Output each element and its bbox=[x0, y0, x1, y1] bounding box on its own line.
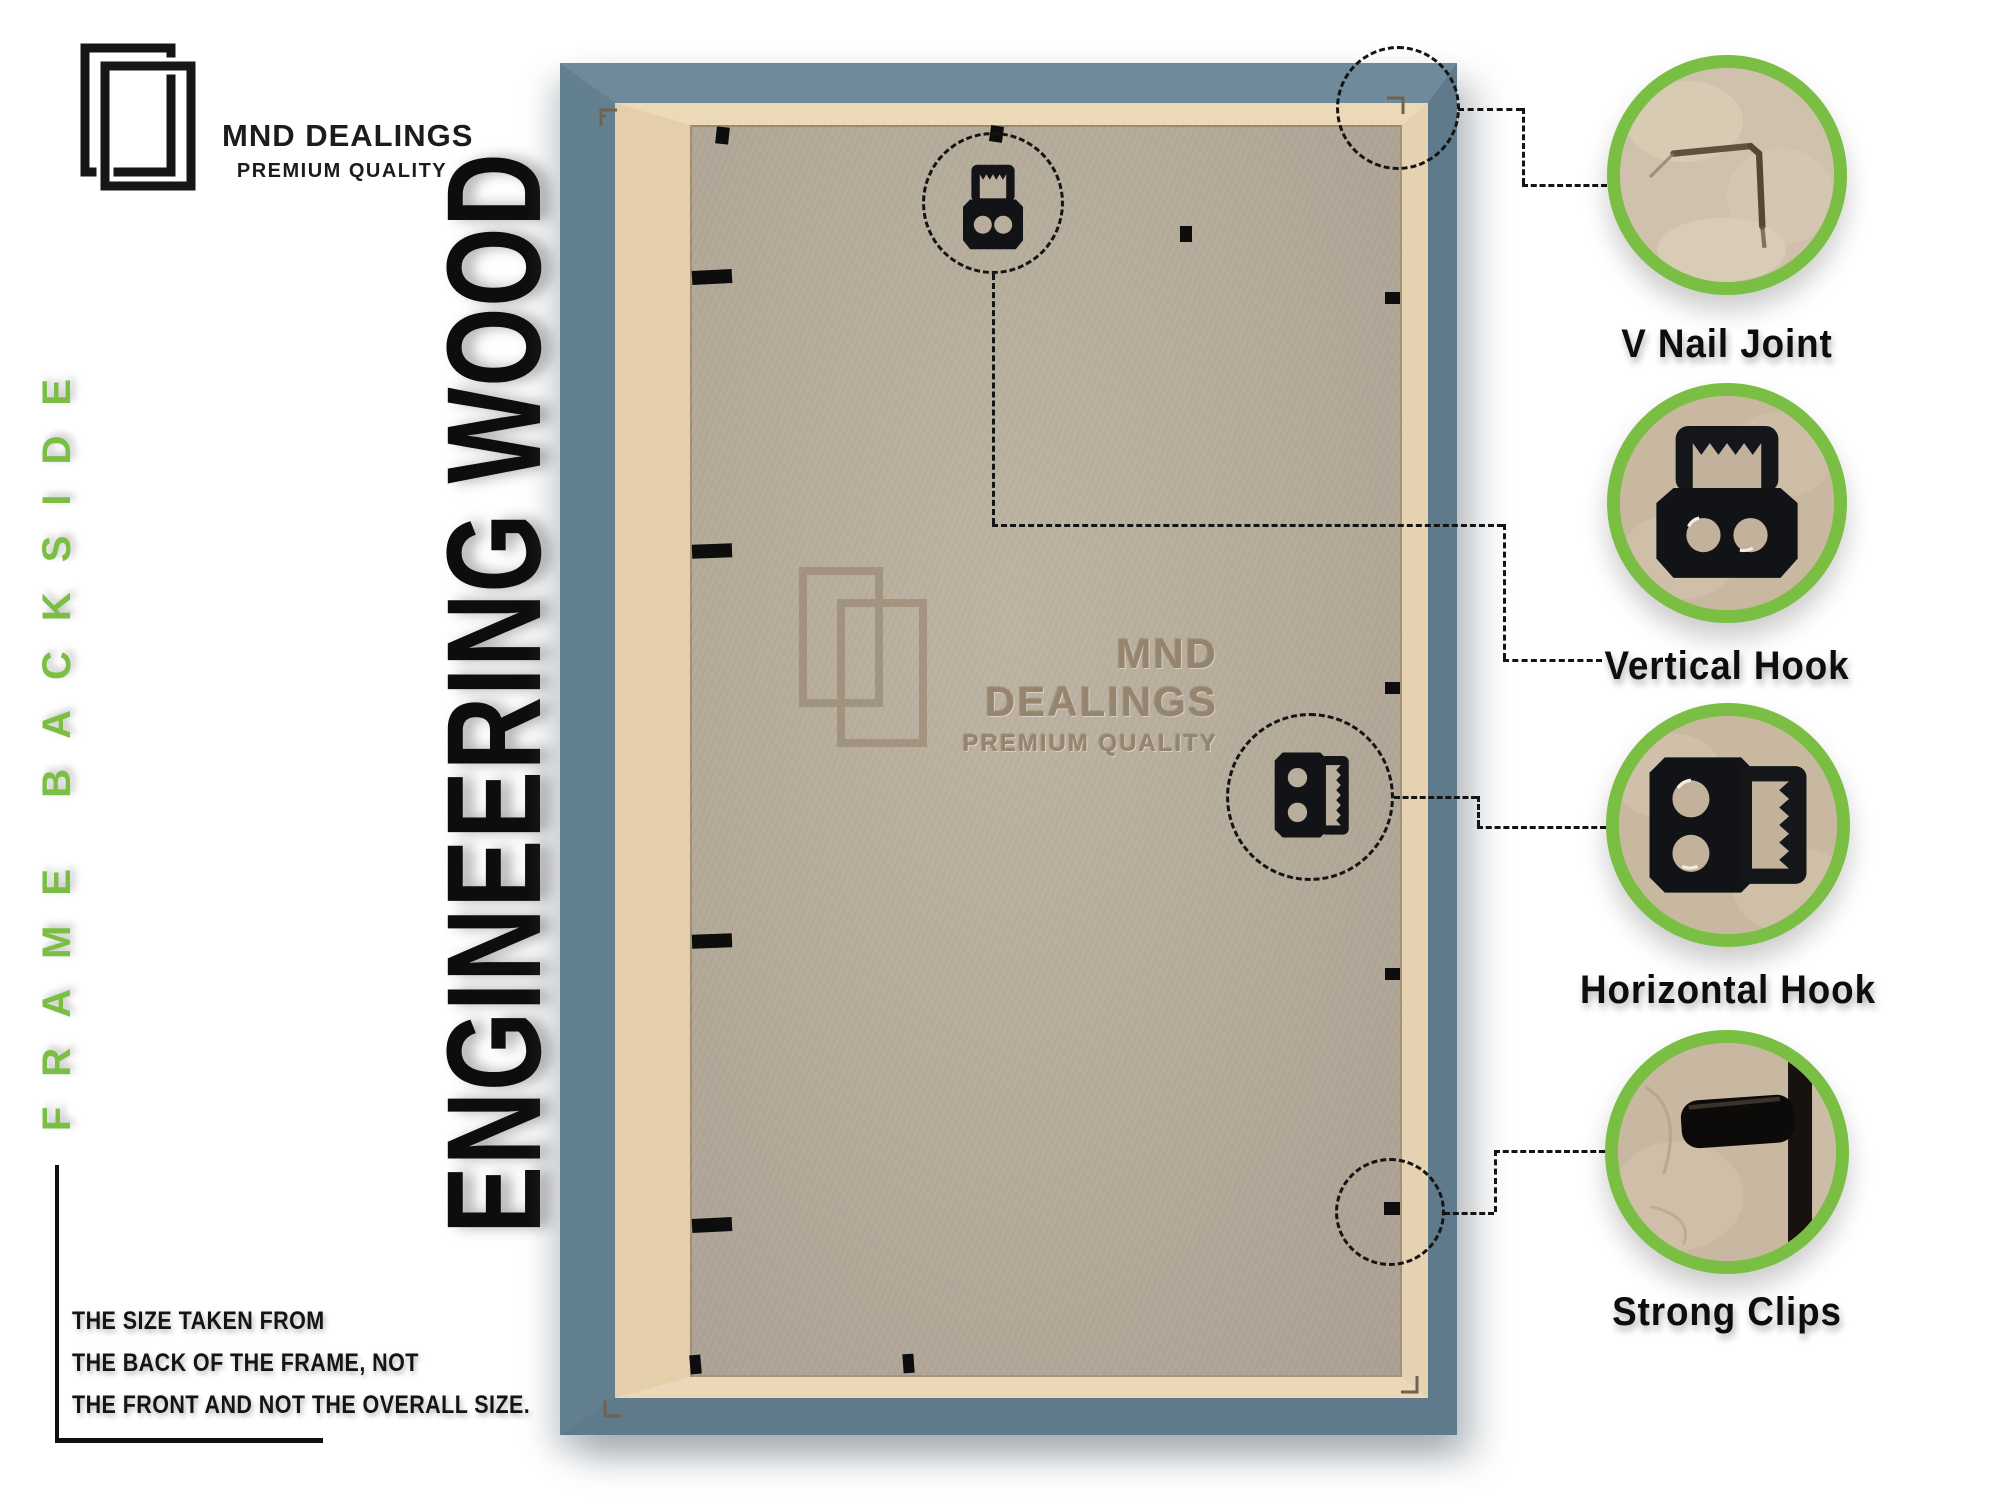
connector-vertical-hook bbox=[992, 274, 995, 524]
connector-v-nail bbox=[1522, 108, 1525, 184]
connector-horizontal-hook bbox=[1477, 796, 1480, 826]
corner-crease-bottom-right-icon bbox=[1398, 1374, 1420, 1396]
backing-clip bbox=[1385, 968, 1400, 980]
callout-circle-v-nail-joint bbox=[1607, 55, 1847, 295]
callout-label-horizontal-hook: Horizontal Hook bbox=[1572, 968, 1885, 1013]
strong-clip-large-icon bbox=[1618, 1043, 1836, 1261]
watermark-name: MND DEALINGS bbox=[940, 630, 1218, 726]
infographic-frame-backside: MND DEALINGS PREMIUM QUALITY FRAME BACKS… bbox=[0, 0, 2000, 1500]
backing-clip bbox=[692, 543, 732, 558]
connector-horizontal-hook bbox=[1477, 826, 1606, 829]
highlight-circle-horizontal-hook bbox=[1226, 713, 1394, 881]
backing-clip bbox=[1385, 682, 1400, 694]
size-note-line-1: THE SIZE TAKEN FROM bbox=[72, 1300, 530, 1342]
connector-strong-clips bbox=[1444, 1212, 1494, 1215]
highlight-circle-vertical-hook bbox=[922, 132, 1064, 274]
connector-v-nail bbox=[1458, 108, 1522, 111]
backing-clip bbox=[715, 126, 730, 144]
connector-vertical-hook bbox=[992, 524, 1503, 527]
horizontal-hook-large-icon bbox=[1619, 716, 1837, 934]
size-note: THE SIZE TAKEN FROM THE BACK OF THE FRAM… bbox=[72, 1300, 605, 1426]
size-note-line-3: THE FRONT AND NOT THE OVERALL SIZE. bbox=[72, 1384, 530, 1426]
brand-frames-logo-icon bbox=[75, 42, 207, 192]
watermark-tagline: PREMIUM QUALITY bbox=[940, 730, 1218, 758]
corner-crease-top-left-icon bbox=[598, 106, 620, 128]
callout-circle-horizontal-hook bbox=[1606, 703, 1850, 947]
callout-circle-strong-clips bbox=[1605, 1030, 1849, 1274]
highlight-circle-corner-joint bbox=[1336, 46, 1460, 170]
note-rule-vertical bbox=[55, 1165, 59, 1443]
callout-label-v-nail-joint: V Nail Joint bbox=[1571, 322, 1884, 367]
backing-clip bbox=[692, 933, 732, 948]
connector-strong-clips bbox=[1494, 1150, 1497, 1212]
watermark-text: MND DEALINGS PREMIUM QUALITY bbox=[940, 630, 1218, 758]
connector-v-nail bbox=[1522, 184, 1607, 187]
watermark-frames-logo-icon bbox=[795, 565, 935, 750]
backing-clip bbox=[1385, 292, 1400, 304]
callout-label-vertical-hook: Vertical Hook bbox=[1571, 644, 1884, 689]
v-nail-joint-icon bbox=[1620, 68, 1834, 282]
connector-horizontal-hook bbox=[1394, 796, 1477, 799]
material-label-engineering-wood: ENGINEERING WOOD bbox=[415, 246, 575, 1234]
connector-vertical-hook bbox=[1503, 524, 1506, 659]
callout-label-strong-clips: Strong Clips bbox=[1571, 1290, 1884, 1335]
corner-crease-bottom-left-icon bbox=[602, 1398, 624, 1420]
note-rule-horizontal bbox=[55, 1438, 323, 1443]
vertical-hook-large-icon bbox=[1620, 396, 1834, 610]
backing-clip bbox=[692, 1217, 733, 1233]
size-note-line-2: THE BACK OF THE FRAME, NOT bbox=[72, 1342, 530, 1384]
backing-clip bbox=[692, 269, 733, 285]
connector-strong-clips bbox=[1494, 1150, 1605, 1153]
highlight-circle-strong-clip bbox=[1335, 1158, 1445, 1266]
callout-circle-vertical-hook bbox=[1607, 383, 1847, 623]
brand-name: MND DEALINGS bbox=[222, 118, 473, 154]
backing-clip bbox=[902, 1354, 914, 1374]
backing-clip bbox=[1180, 226, 1192, 242]
backing-clip bbox=[689, 1355, 702, 1375]
side-label-frame-backside: FRAME BACKSIDE bbox=[25, 310, 89, 1170]
